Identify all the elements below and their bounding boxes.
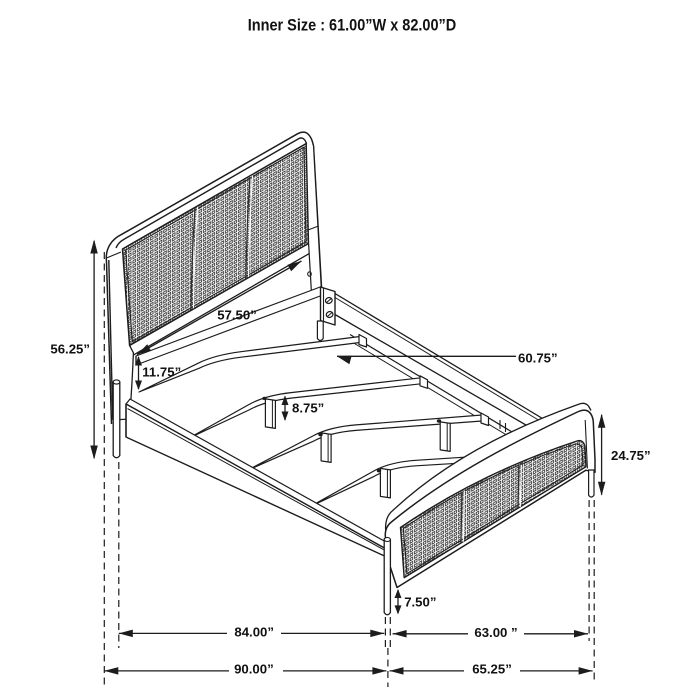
svg-text:90.00”: 90.00” (234, 662, 274, 677)
svg-text:7.50”: 7.50” (404, 595, 436, 610)
svg-text:56.25”: 56.25” (50, 342, 90, 357)
svg-text:Inner Size : 61.00”W x 82.00”D: Inner Size : 61.00”W x 82.00”D (248, 16, 457, 35)
svg-text:24.75”: 24.75” (611, 448, 651, 463)
svg-text:63.00 ”: 63.00 ” (474, 625, 517, 640)
svg-text:65.25”: 65.25” (472, 662, 512, 677)
svg-text:11.75”: 11.75” (142, 364, 181, 379)
svg-text:84.00”: 84.00” (234, 624, 274, 639)
svg-text:8.75”: 8.75” (292, 400, 324, 415)
svg-text:57.50”: 57.50” (217, 307, 257, 322)
svg-text:60.75”: 60.75” (518, 350, 558, 365)
